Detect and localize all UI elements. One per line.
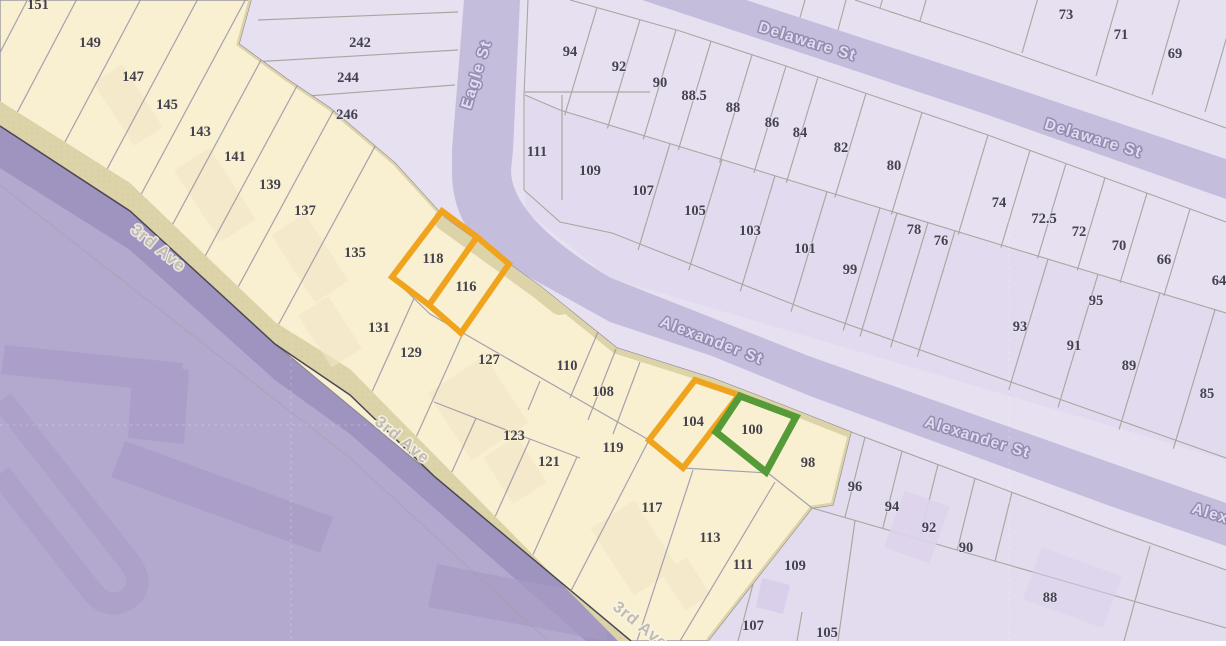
svg-text:82: 82 (834, 140, 849, 156)
svg-text:99: 99 (843, 262, 858, 278)
svg-text:88: 88 (726, 100, 741, 116)
svg-text:104: 104 (682, 414, 704, 430)
svg-text:64: 64 (1212, 273, 1226, 289)
svg-text:71: 71 (1114, 27, 1129, 43)
svg-text:78: 78 (907, 222, 922, 238)
svg-text:135: 135 (344, 245, 366, 261)
svg-text:94: 94 (885, 499, 900, 515)
svg-text:119: 119 (603, 440, 624, 456)
svg-text:105: 105 (816, 625, 838, 641)
svg-text:98: 98 (801, 455, 816, 471)
svg-text:89: 89 (1122, 358, 1137, 374)
svg-text:118: 118 (423, 251, 444, 267)
svg-text:143: 143 (189, 124, 211, 140)
svg-text:147: 147 (122, 69, 144, 85)
svg-text:96: 96 (848, 479, 863, 495)
svg-text:139: 139 (259, 177, 281, 193)
svg-text:80: 80 (887, 158, 902, 174)
svg-text:92: 92 (612, 59, 627, 75)
svg-text:93: 93 (1013, 319, 1028, 335)
svg-text:105: 105 (684, 203, 706, 219)
svg-text:91: 91 (1067, 338, 1082, 354)
svg-text:70: 70 (1112, 238, 1127, 254)
svg-text:244: 244 (337, 70, 359, 86)
svg-text:113: 113 (700, 530, 721, 546)
svg-text:69: 69 (1168, 46, 1183, 62)
svg-text:94: 94 (563, 44, 578, 60)
svg-text:123: 123 (503, 428, 525, 444)
svg-text:151: 151 (27, 0, 49, 13)
svg-text:85: 85 (1200, 386, 1215, 402)
svg-text:72: 72 (1072, 224, 1087, 240)
svg-text:129: 129 (400, 345, 422, 361)
svg-text:145: 145 (156, 97, 178, 113)
svg-text:88: 88 (1043, 590, 1058, 606)
svg-text:74: 74 (992, 195, 1007, 211)
svg-text:121: 121 (538, 454, 560, 470)
svg-text:108: 108 (592, 384, 614, 400)
svg-text:116: 116 (456, 279, 477, 295)
svg-text:117: 117 (642, 500, 663, 516)
svg-text:149: 149 (79, 35, 101, 51)
svg-text:242: 242 (349, 35, 371, 51)
svg-text:109: 109 (579, 163, 601, 179)
svg-text:72.5: 72.5 (1031, 211, 1056, 227)
svg-text:90: 90 (959, 540, 974, 556)
svg-text:110: 110 (557, 358, 578, 374)
svg-text:246: 246 (336, 107, 358, 123)
svg-text:90: 90 (653, 75, 668, 91)
svg-text:127: 127 (478, 352, 500, 368)
svg-text:86: 86 (765, 115, 780, 131)
svg-text:95: 95 (1089, 293, 1104, 309)
svg-text:131: 131 (368, 320, 390, 336)
svg-text:66: 66 (1157, 252, 1172, 268)
svg-text:141: 141 (224, 149, 246, 165)
svg-text:107: 107 (742, 618, 764, 634)
svg-text:84: 84 (793, 125, 808, 141)
svg-text:101: 101 (794, 241, 816, 257)
svg-text:111: 111 (733, 557, 753, 573)
svg-text:73: 73 (1059, 7, 1074, 23)
svg-text:76: 76 (934, 233, 949, 249)
svg-text:111: 111 (527, 144, 547, 160)
svg-text:103: 103 (739, 223, 761, 239)
svg-text:92: 92 (922, 520, 937, 536)
svg-text:109: 109 (784, 558, 806, 574)
svg-text:100: 100 (741, 422, 763, 438)
svg-text:137: 137 (294, 203, 316, 219)
svg-text:107: 107 (632, 183, 654, 199)
svg-text:88.5: 88.5 (681, 88, 706, 104)
